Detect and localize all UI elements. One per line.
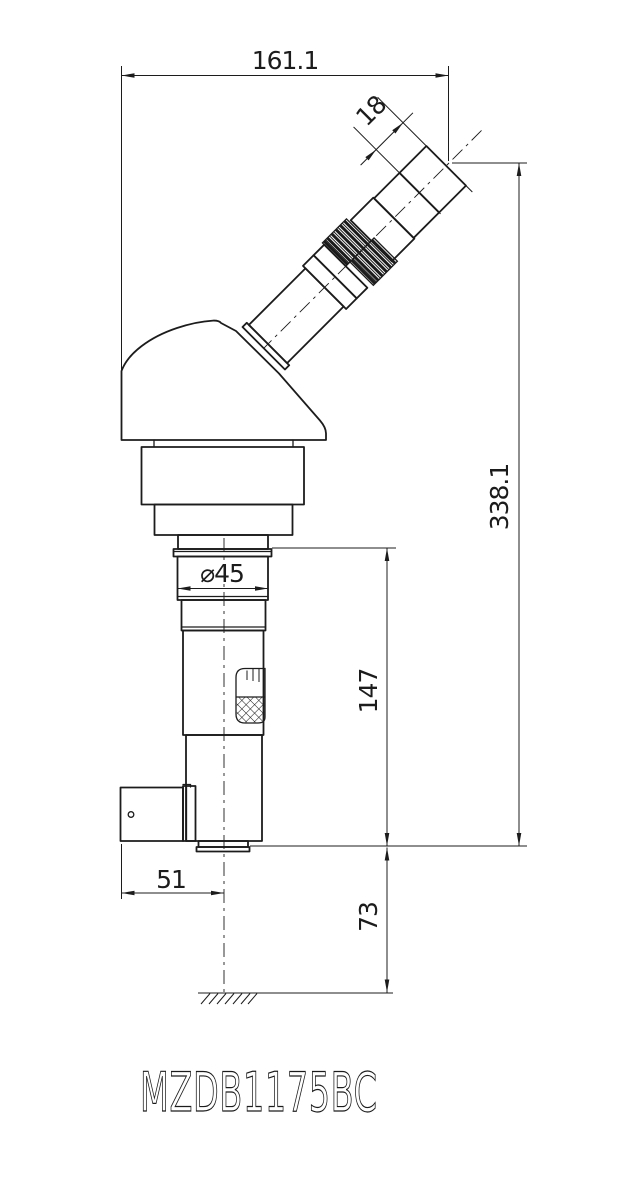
dimension-d45: ⌀45 (178, 559, 269, 589)
stand-column (121, 447, 305, 852)
bracket-screw-hole (128, 812, 134, 818)
dim-text-lower-body-height: 147 (354, 669, 383, 714)
bracket-block (121, 788, 184, 842)
microscope-dimension-drawing: 161.1 18 338.1 ⌀45 147 51 73 MZDB1175BC (0, 0, 620, 1200)
dimension-73: 73 (354, 848, 387, 993)
dimension-18: 18 (350, 90, 392, 132)
dim-text-total-height: 338.1 (485, 464, 514, 531)
part-number-title: MZDB1175BC (140, 1061, 378, 1125)
neck-ring (178, 535, 268, 549)
adapter-ring (182, 600, 266, 631)
mounting-bracket (121, 785, 196, 842)
technical-drawing-page: 161.1 18 338.1 ⌀45 147 51 73 MZDB1175BC (0, 0, 620, 1200)
knurl-upper-half (322, 219, 369, 266)
head-outline (122, 321, 327, 440)
dim-text-ground-clearance: 73 (354, 902, 383, 932)
dim-text-axis-offset: 51 (156, 865, 186, 894)
lock-knob (236, 669, 265, 724)
knob-knurl-fill (237, 697, 264, 722)
bracket-clamp-plate (183, 786, 196, 841)
dimension-161-1: 161.1 (122, 46, 449, 371)
dim-text-eyepiece-tip: 18 (350, 90, 392, 132)
ground-hatching (201, 994, 257, 1005)
turret-housing-upper (142, 447, 305, 505)
head-body (122, 321, 327, 447)
knob-tick-marks (247, 669, 259, 682)
objective-flange-lip (197, 847, 250, 852)
ground-symbol (198, 993, 393, 1004)
mount-flange (174, 549, 272, 557)
dim-text-mount-diameter: ⌀45 (200, 559, 244, 588)
objective-flange (197, 841, 250, 852)
dim-text-overall-width: 161.1 (252, 46, 319, 75)
dimension-147: 147 (272, 548, 396, 846)
turret-housing-lower (155, 505, 293, 536)
